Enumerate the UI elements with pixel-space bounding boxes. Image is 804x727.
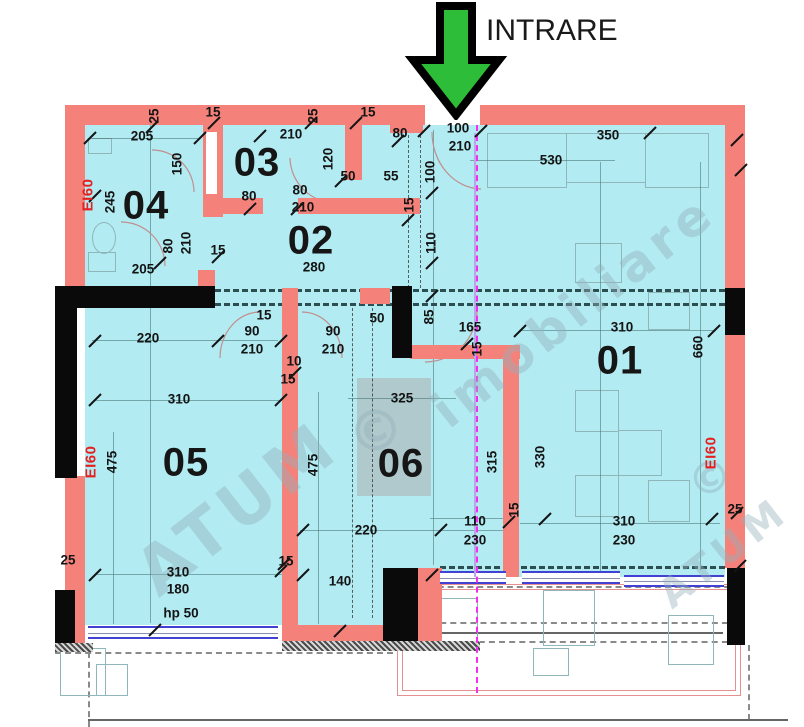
entrance-label: INTRARE (486, 14, 618, 48)
dimension-label: 220 (355, 523, 378, 538)
wall-segment (360, 288, 390, 304)
dimension-label: 15 (210, 243, 225, 258)
dimension-label: 15 (256, 308, 271, 323)
dimension-label: 310 (167, 565, 190, 580)
dimension-label: 80 (161, 238, 176, 253)
dimension-label: 210 (179, 232, 194, 255)
dimension-label: 25 (727, 502, 742, 517)
dimension-label: 15 (360, 105, 375, 120)
dimension-label: 660 (691, 336, 706, 359)
dimension-label: 230 (464, 533, 487, 548)
dimension-label: 50 (369, 311, 384, 326)
dimension-label: 325 (391, 391, 414, 406)
dimension-label: 350 (597, 128, 620, 143)
room02-door-arc (121, 222, 165, 266)
room-number-02: 02 (288, 219, 335, 264)
structural-wall (55, 590, 75, 645)
room-number-06: 06 (378, 442, 425, 487)
ground-hatch (55, 643, 93, 652)
dimension-label: 150 (170, 153, 185, 176)
dimension-label: 15 (280, 372, 295, 387)
dimension-label: 80 (292, 183, 307, 198)
dimension-label: 475 (105, 451, 120, 474)
dimension-label: 310 (613, 514, 636, 529)
dimension-label: 230 (613, 533, 636, 548)
dimension-label: 100 (423, 161, 438, 184)
dimension-label: hp 50 (163, 606, 198, 621)
dimension-label: 25 (306, 108, 321, 123)
dimension-label: 205 (132, 262, 155, 277)
floor-plan: INTRARE 010203040506EI60EI60EI6020525152… (0, 0, 804, 727)
dimension-label: 25 (60, 553, 75, 568)
dimension-label: 25 (147, 108, 162, 123)
dimension-label: 210 (449, 139, 472, 154)
wall-segment (480, 105, 745, 125)
fire-rating-label: EI60 (80, 179, 97, 212)
dimension-label: 15 (205, 105, 220, 120)
dimension-label: 530 (540, 153, 563, 168)
dimension-label: 210 (280, 127, 303, 142)
structural-wall (392, 286, 412, 358)
dimension-label: 315 (485, 451, 500, 474)
structural-wall (725, 288, 745, 335)
dimension-label: 15 (402, 197, 417, 212)
ground-hatch (282, 641, 480, 651)
window (440, 571, 506, 584)
dimension-label: 120 (321, 148, 336, 171)
dimension-label: 165 (459, 320, 482, 335)
dimension-label: 475 (306, 454, 321, 477)
dimension-label: 15 (470, 341, 485, 356)
fire-rating-label: EI60 (703, 437, 720, 470)
wall-segment (418, 568, 442, 645)
structural-wall (727, 568, 745, 645)
window (88, 626, 278, 639)
dimension-label: 210 (292, 200, 315, 215)
dimension-label: 85 (422, 309, 437, 324)
dimension-label: 245 (103, 191, 118, 214)
dimension-label: 140 (329, 574, 352, 589)
dimension-label: 210 (322, 342, 345, 357)
dimension-label: 280 (303, 260, 326, 275)
dimension-label: 220 (137, 331, 160, 346)
dimension-label: 10 (286, 354, 301, 369)
dimension-label: 110 (464, 514, 486, 529)
room-number-03: 03 (234, 141, 281, 186)
fire-rating-label: EI60 (83, 446, 100, 479)
dimension-label: 180 (167, 582, 190, 597)
window (522, 571, 620, 584)
dimension-label: 55 (383, 169, 398, 184)
room-number-04: 04 (123, 184, 170, 229)
dimension-label: 80 (241, 189, 256, 204)
wall-segment (725, 125, 745, 288)
dimension-label: 15 (278, 554, 293, 569)
dimension-label: 100 (447, 121, 470, 136)
dimension-label: 330 (533, 446, 548, 469)
structural-wall (55, 286, 77, 478)
dimension-label: 15 (507, 502, 522, 517)
dimension-label: 210 (241, 342, 264, 357)
structural-wall (55, 286, 215, 308)
dimension-label: 310 (168, 392, 191, 407)
dimension-label: 80 (392, 126, 407, 141)
room-number-01: 01 (597, 339, 644, 384)
structural-wall (383, 568, 418, 645)
dimension-label: 110 (424, 232, 439, 254)
room-number-05: 05 (163, 441, 210, 486)
dimension-label: 90 (244, 324, 259, 339)
dimension-label: 310 (611, 320, 634, 335)
dimension-label: 205 (131, 129, 154, 144)
dimension-label: 90 (325, 324, 340, 339)
door-opening (206, 132, 217, 194)
dimension-label: 50 (340, 169, 355, 184)
